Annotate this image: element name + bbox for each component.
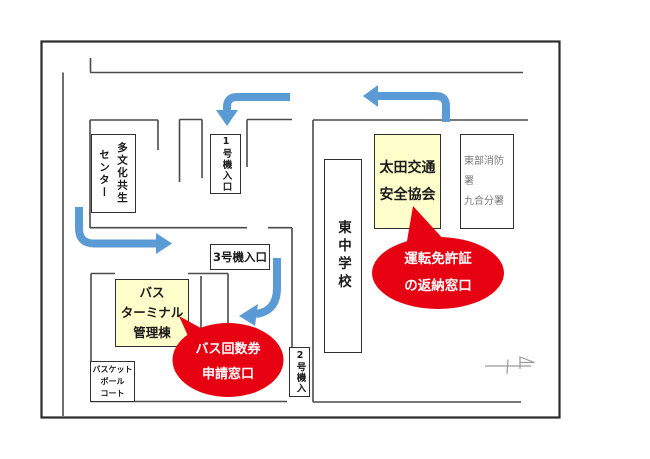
callout-bus-ticket-text: バス回数券 申請窓口 (176, 338, 280, 386)
callout-bus-ticket-bubble (173, 323, 284, 397)
callout-license-return-line1: 運転免許証 (404, 246, 472, 273)
route-arrow-top-right (377, 96, 446, 122)
traffic-safety-label-line1: 太田交通 (380, 155, 436, 182)
fire-station-label-line1: 東部消防署 (464, 152, 513, 192)
gate-3-entrance-sign: 3号機入口 (210, 244, 270, 270)
basketball-court-area: バスケット ボール コート (90, 361, 135, 402)
callout-license-return-line2: の返納窓口 (404, 273, 472, 300)
building-multicultural-center: 多文化共生 センター (91, 134, 136, 213)
building-multicultural-center-label-line1: 多文化共生 (115, 142, 130, 205)
gate-2-entrance-label: 2号機入 (293, 350, 307, 394)
bus-terminal-label-line2: ターミナル (121, 303, 184, 323)
higashi-junior-high-label: 東中学校 (333, 220, 353, 292)
building-bus-terminal-admin: バス ターミナル 管理棟 (115, 279, 189, 347)
route-arrow-to-gate1 (227, 97, 290, 112)
callout-license-return-text: 運転免許証 の返納窓口 (374, 245, 502, 301)
basketball-court-label-line1: バスケット (93, 364, 133, 376)
building-traffic-safety-association: 太田交通 安全協会 (374, 134, 441, 229)
fire-station-label-line2: 九合分署 (464, 192, 513, 212)
callout-bus-ticket-line1: バス回数券 (195, 337, 260, 362)
gate-3-entrance-label: 3号機入口 (213, 249, 267, 265)
bus-terminal-label-line3: 管理棟 (121, 323, 184, 343)
callout-bus-ticket-line2: 申請窓口 (202, 362, 254, 387)
access-map: 多文化共生 センター 1号機入口 3号機入口 2号機入 バス ターミナル 管理棟… (0, 0, 650, 459)
gate-1-entrance-label: 1号機入口 (219, 136, 233, 193)
callout-license-return-bubble (372, 237, 504, 309)
bus-terminal-label-line1: バス (121, 283, 184, 303)
basketball-court-label-line2: ボール (93, 376, 133, 388)
gate-2-entrance-sign: 2号機入 (289, 347, 310, 397)
basketball-court-label-line3: コート (93, 388, 133, 400)
gate-1-entrance-sign: 1号機入口 (210, 134, 241, 194)
building-multicultural-center-label-line2: センター (97, 149, 112, 199)
building-eastern-fire-station: 東部消防署 九合分署 (460, 134, 514, 229)
building-higashi-junior-high: 東中学校 (324, 159, 362, 353)
traffic-safety-label-line2: 安全協会 (380, 182, 436, 209)
compass-mark (485, 357, 535, 374)
